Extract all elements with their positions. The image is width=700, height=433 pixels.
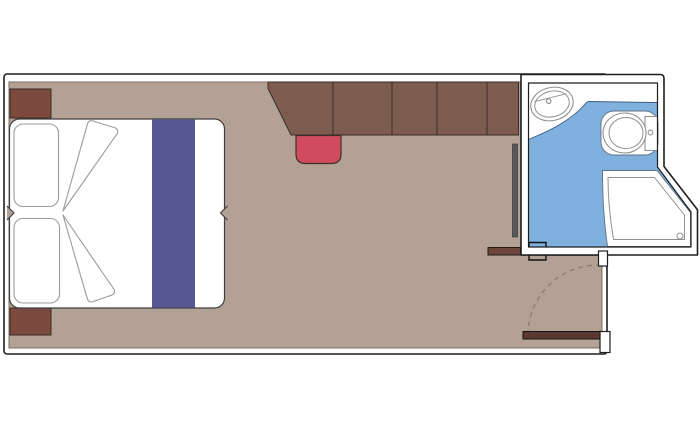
nightstand-top [10, 89, 51, 118]
entrance-door-leaf [523, 332, 600, 340]
luggage-shelf [488, 248, 521, 256]
cabin-floor-plan [0, 0, 700, 433]
entrance-recess [600, 332, 610, 353]
wardrobe-closet-units [268, 82, 519, 135]
pillow-bottom [14, 219, 60, 304]
washbasin-drain [546, 98, 552, 104]
floor-plan-drawing [0, 0, 700, 433]
nightstand-bottom [10, 308, 51, 335]
pillow-top [14, 124, 59, 207]
stool [296, 136, 341, 164]
bathroom-wall-stub [599, 251, 608, 266]
toilet-flush-button [648, 130, 653, 135]
wall-mirror-strip [513, 144, 518, 237]
bed-runner [152, 120, 195, 308]
